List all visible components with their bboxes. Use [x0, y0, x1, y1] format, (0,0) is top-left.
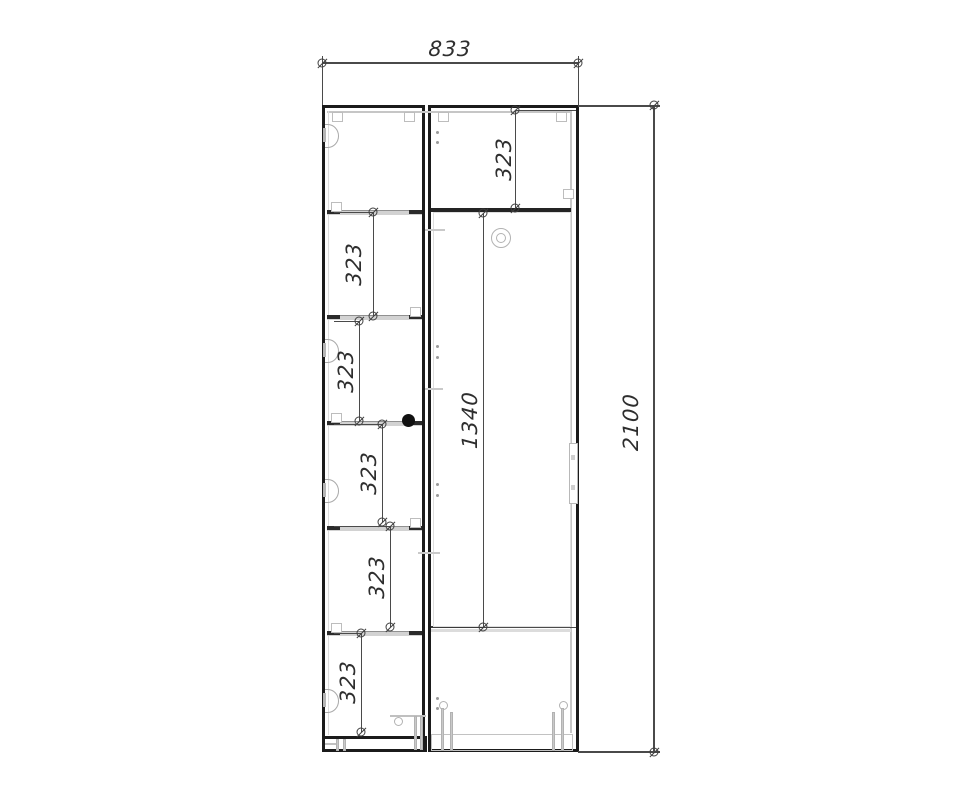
- shelf-pin-mark: [425, 388, 443, 390]
- extension-line: [578, 751, 660, 753]
- dimension-line-door: [483, 213, 484, 627]
- dimension-line-width: [322, 62, 578, 64]
- dimension-label-shelf: 323: [342, 242, 366, 287]
- dimension-line-shelf: [373, 212, 374, 316]
- door-handle-screw: [571, 485, 575, 490]
- dimension-label-shelf: 323: [336, 660, 360, 705]
- door-knob: [402, 414, 415, 427]
- drill-mark: [436, 494, 439, 497]
- dimension-label-shelf: 323: [365, 555, 389, 600]
- connector-line: [334, 526, 390, 527]
- shelf-bracket-icon: [331, 413, 342, 423]
- shelf-bracket-icon: [438, 112, 449, 122]
- adjustable-foot-cap: [394, 717, 403, 726]
- adjustable-foot-icon: [343, 739, 346, 751]
- adjustable-foot-icon: [441, 708, 444, 751]
- dimension-marker-icon: [650, 748, 659, 757]
- shelf-bracket-icon: [332, 112, 343, 122]
- shelf-pin-mark: [418, 552, 440, 554]
- adjustable-foot-icon: [414, 716, 417, 750]
- dimension-marker-icon: [511, 204, 520, 213]
- dimension-marker-icon: [479, 623, 488, 632]
- drill-mark: [436, 707, 439, 710]
- dimension-marker-icon: [386, 623, 395, 632]
- adjustable-foot-icon: [450, 712, 453, 751]
- dimension-label-top-right: 323: [492, 137, 516, 182]
- center-divider-panel: [422, 105, 431, 752]
- top-panel-inner-edge: [327, 111, 571, 113]
- dimension-marker-icon: [386, 522, 395, 531]
- dimension-label-width: 833: [428, 37, 473, 61]
- connector-line: [334, 424, 382, 425]
- dimension-marker-icon: [369, 208, 378, 217]
- dimension-line-shelf: [361, 633, 362, 732]
- lock-knob-inner: [496, 233, 506, 243]
- drill-mark: [436, 345, 439, 348]
- adjustable-foot-icon: [420, 716, 423, 750]
- dimension-marker-icon: [479, 209, 488, 218]
- shelf-end-cap: [409, 210, 422, 214]
- door-handle-screw: [571, 455, 575, 460]
- shelf-bracket-icon: [404, 112, 415, 122]
- extension-line: [578, 105, 660, 107]
- dimension-marker-icon: [357, 629, 366, 638]
- drill-mark: [436, 356, 439, 359]
- connector-line: [483, 627, 576, 628]
- dimension-marker-icon: [318, 59, 327, 68]
- technical-drawing-canvas: 833 2100 323 1340 323 323 323 323 323: [0, 0, 978, 800]
- dimension-marker-icon: [574, 59, 583, 68]
- dimension-marker-icon: [378, 420, 387, 429]
- drill-mark: [436, 697, 439, 700]
- shelf-end-cap: [327, 315, 340, 319]
- drill-mark: [436, 483, 439, 486]
- adjustable-foot-icon: [336, 739, 339, 751]
- shelf-pin-mark: [425, 229, 445, 231]
- door-handle: [569, 443, 578, 504]
- dimension-marker-icon: [357, 728, 366, 737]
- dimension-marker-icon: [355, 317, 364, 326]
- shelf-bracket-icon: [410, 518, 421, 528]
- dimension-marker-icon: [650, 101, 659, 110]
- dimension-line-height: [653, 105, 655, 752]
- drill-mark: [436, 131, 439, 134]
- right-lower-shelf-face: [431, 629, 571, 632]
- dimension-label-shelf: 323: [334, 349, 358, 394]
- connector-line: [515, 110, 576, 111]
- adjustable-foot-icon: [561, 708, 564, 751]
- dimension-marker-icon: [511, 106, 520, 115]
- dimension-marker-icon: [369, 312, 378, 321]
- dimension-label-height: 2100: [619, 392, 643, 451]
- drill-mark: [436, 141, 439, 144]
- dimension-line-shelf: [359, 321, 360, 421]
- shelf-bracket-icon: [331, 202, 342, 212]
- shelf-bracket-icon: [331, 623, 342, 633]
- adjustable-foot-icon: [552, 712, 555, 751]
- dimension-label-shelf: 323: [357, 451, 381, 496]
- shelf-bracket-icon: [556, 112, 567, 122]
- dimension-label-door: 1340: [458, 390, 482, 449]
- shelf-end-cap: [409, 631, 422, 635]
- shelf-bracket-icon: [410, 307, 421, 317]
- right-door-outline: [433, 212, 571, 627]
- dimension-line-shelf: [390, 526, 391, 627]
- shelf-bracket-icon: [563, 189, 574, 199]
- dimension-line-shelf: [382, 424, 383, 522]
- connector-line: [334, 212, 373, 213]
